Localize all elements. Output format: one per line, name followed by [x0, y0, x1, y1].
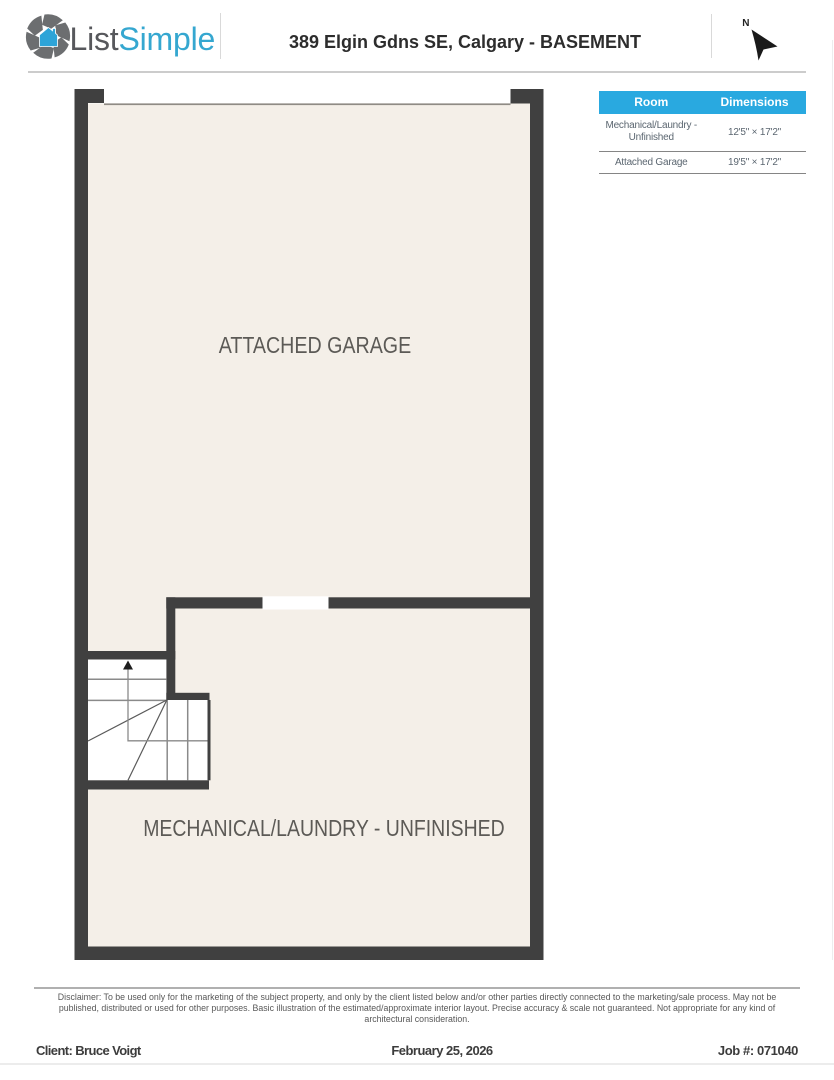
svg-text:MECHANICAL/LAUNDRY - UNFINISHE: MECHANICAL/LAUNDRY - UNFINISHED	[143, 815, 505, 841]
svg-text:ATTACHED GARAGE: ATTACHED GARAGE	[219, 332, 412, 358]
